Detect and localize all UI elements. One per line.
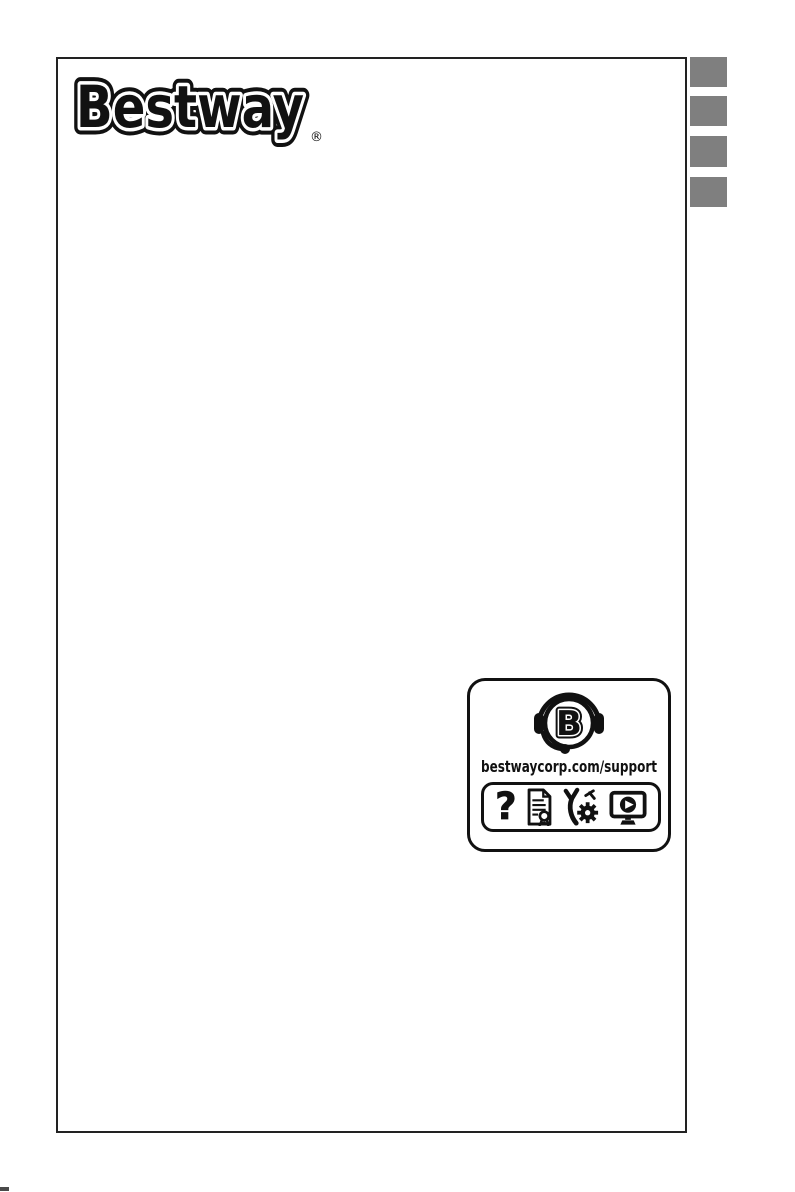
- support-url-text: bestwaycorp.com/support: [481, 757, 657, 776]
- headset-b-icon: B B B: [531, 683, 607, 755]
- side-tab-3: [690, 136, 727, 167]
- print-corner-mark: [0, 1187, 9, 1191]
- support-url: bestwaycorp.com/support: [471, 756, 667, 778]
- document-page-canvas: Bestway Bestway Bestway ® B B B: [0, 0, 795, 1192]
- headset-letter-core: B: [556, 704, 582, 744]
- bestway-logo: Bestway Bestway Bestway ®: [72, 75, 328, 151]
- support-icon-box: ?: [481, 782, 661, 832]
- side-tab-2: [690, 96, 727, 126]
- bestway-logo-core: Bestway: [76, 75, 304, 141]
- video-tutorial-icon: [609, 790, 647, 825]
- support-badge: B B B bestwaycorp.com/support ?: [467, 678, 671, 852]
- side-tab-1: [690, 57, 727, 87]
- side-tab-4: [690, 177, 727, 207]
- question-mark-icon: ?: [495, 788, 516, 825]
- registered-trademark-icon: ®: [310, 130, 323, 145]
- page-border: Bestway Bestway Bestway ®: [56, 57, 687, 1133]
- tools-icon: [562, 787, 600, 827]
- warranty-document-icon: [526, 788, 553, 826]
